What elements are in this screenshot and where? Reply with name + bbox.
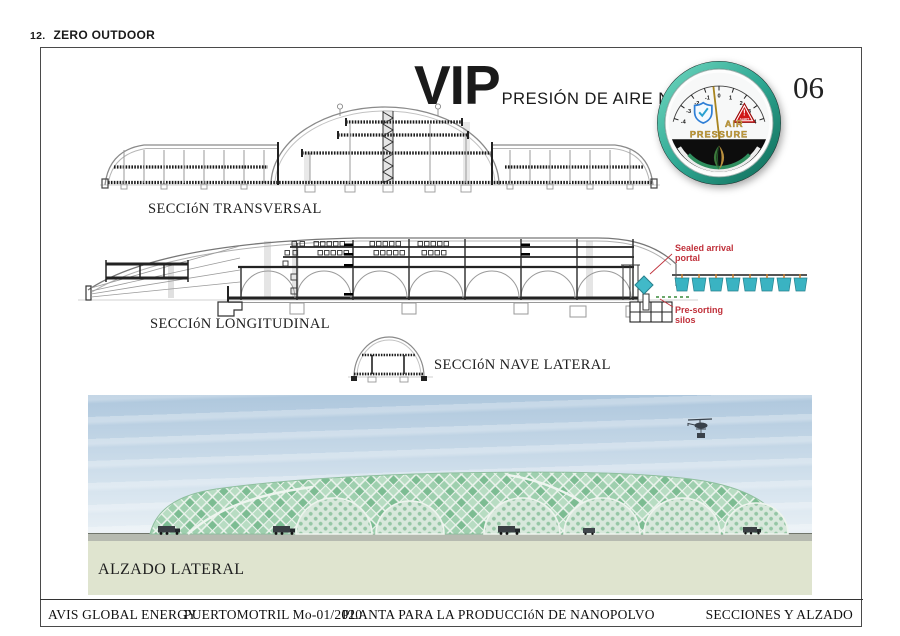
seccion-transversal-drawing [100,92,660,207]
gauge-svg: -4 -3 -2 -1 0 1 2 3 4 ! ALERT [656,60,782,186]
conveyor-buckets [675,274,807,291]
svg-text:-4: -4 [681,120,687,126]
footer-company: AVIS GLOBAL ENERGY [48,607,197,623]
air-pressure-gauge-icon: -4 -3 -2 -1 0 1 2 3 4 ! ALERT [656,60,782,186]
footer-project: PLANTA PARA LA PRODUCCIóN DE NANOPOLVO [342,607,655,623]
label-seccion-longitudinal: SECCIóN LONGITUDINAL [150,316,330,333]
drawing-sheet: 12.ZERO OUTDOOR VIP PRESIÓN DE AIRE NEGA… [0,0,900,636]
label-seccion-transversal: SECCIóN TRANSVERSAL [148,201,322,218]
svg-text:AIR: AIR [725,119,744,129]
svg-text:2: 2 [740,101,743,107]
shield-check-icon [695,103,712,123]
footer-code: PUERTOMOTRIL Mo-01/2020 [184,607,362,623]
svg-text:-1: -1 [705,95,710,101]
footer-divider [40,599,863,600]
svg-text:-3: -3 [686,109,691,115]
dome-building [88,395,812,545]
footer-sheet-title: SECCIONES Y ALZADO [706,607,853,623]
header-number: 12. [30,30,46,42]
sheet-header: 12.ZERO OUTDOOR [30,28,155,42]
helicopter-icon [688,419,712,438]
label-alzado-lateral: ALZADO LATERAL [98,561,244,579]
annotation-sealed-portal: Sealed arrivalportal [675,243,734,263]
portal-column [643,294,649,310]
annotation-presorting-silos: Pre-sortingsilos [675,305,723,325]
alzado-lateral-render: ALZADO LATERAL [88,395,812,595]
header-title: ZERO OUTDOOR [54,28,156,42]
svg-text:0: 0 [717,94,720,100]
svg-text:PRESSURE: PRESSURE [690,130,748,140]
svg-text:1: 1 [729,95,732,101]
seccion-nave-lateral-drawing [348,330,433,384]
label-seccion-nave-lateral: SECCIóN NAVE LATERAL [434,357,611,374]
page-number: 06 [793,70,824,106]
